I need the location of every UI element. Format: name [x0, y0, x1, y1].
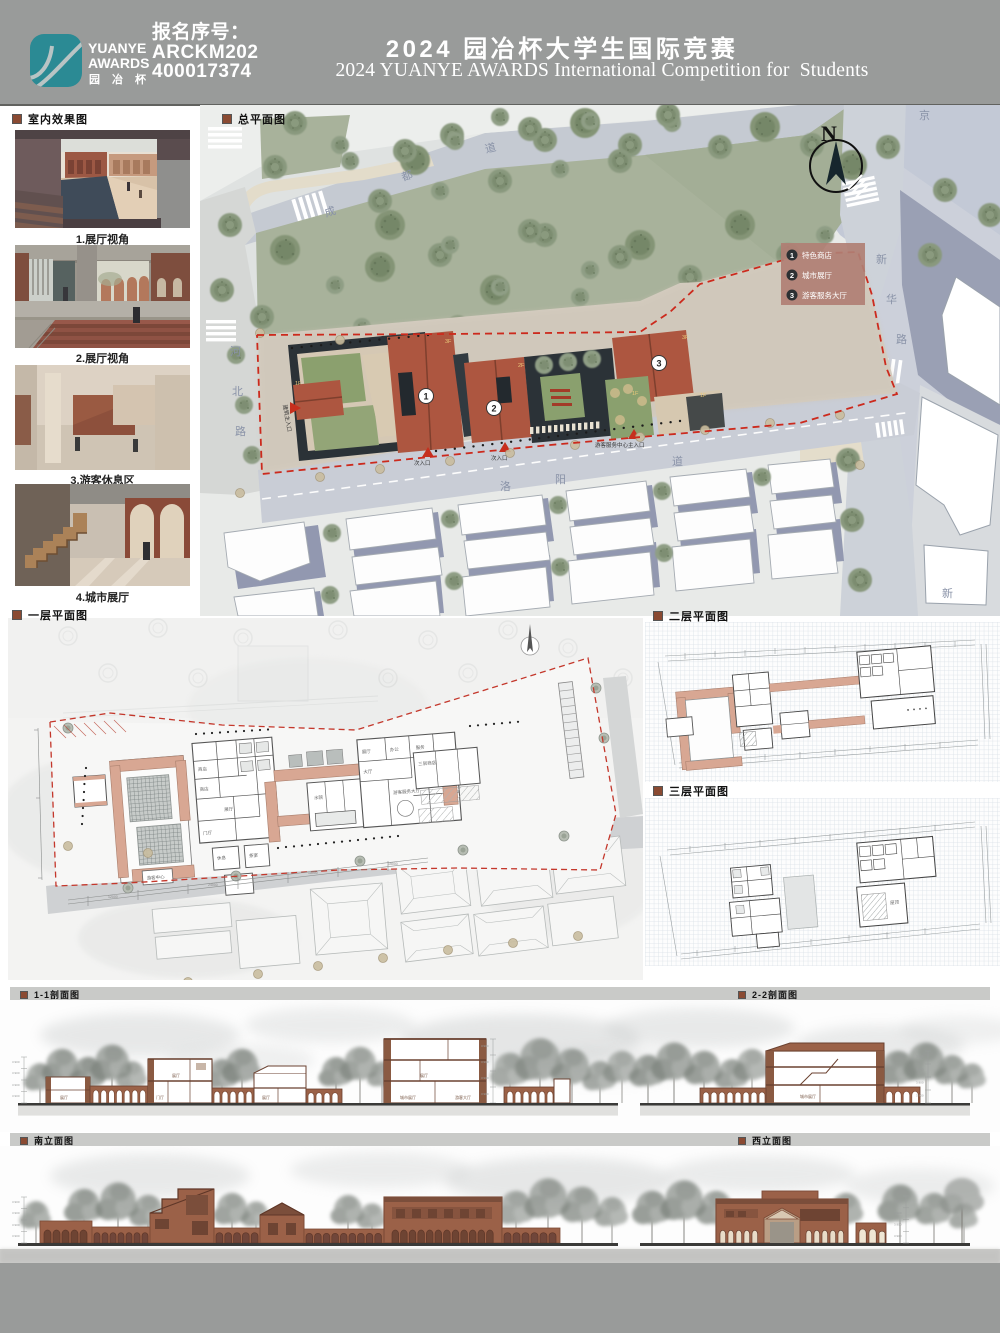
- svg-text:15000: 15000: [388, 862, 398, 866]
- svg-text:3.900: 3.900: [894, 1234, 902, 1238]
- svg-text:3.900: 3.900: [12, 1071, 20, 1075]
- svg-text:门厅: 门厅: [156, 1094, 164, 1100]
- svg-text:3: 3: [790, 291, 794, 300]
- svg-text:3.900: 3.900: [12, 1083, 20, 1087]
- svg-text:3.900: 3.900: [916, 1055, 924, 1059]
- svg-text:3F: 3F: [445, 339, 452, 345]
- svg-text:2: 2: [790, 271, 794, 280]
- svg-text:12000: 12000: [108, 895, 118, 899]
- svg-text:1F: 1F: [632, 391, 639, 397]
- svg-text:华: 华: [886, 292, 899, 306]
- svg-text:3.900: 3.900: [916, 1094, 924, 1098]
- svg-text:3.900: 3.900: [916, 1081, 924, 1085]
- svg-text:新: 新: [876, 252, 889, 266]
- svg-text:3.900: 3.900: [894, 1223, 902, 1227]
- svg-text:1F: 1F: [295, 381, 302, 387]
- svg-text:京: 京: [919, 108, 932, 122]
- svg-text:24000: 24000: [208, 883, 218, 887]
- svg-text:1F: 1F: [700, 393, 707, 399]
- svg-text:游客服务大厅: 游客服务大厅: [802, 290, 847, 300]
- svg-text:次入口: 次入口: [414, 459, 431, 467]
- svg-text:次入口: 次入口: [491, 454, 508, 462]
- svg-text:1: 1: [423, 392, 428, 402]
- svg-text:3.900: 3.900: [12, 1211, 20, 1215]
- svg-text:3.900: 3.900: [481, 1092, 489, 1096]
- svg-text:3.900: 3.900: [12, 1223, 20, 1227]
- svg-text:北: 北: [232, 385, 245, 398]
- svg-text:18000: 18000: [308, 871, 318, 875]
- svg-text:展厅: 展厅: [60, 1094, 68, 1100]
- svg-text:3: 3: [656, 359, 661, 369]
- svg-text:3.900: 3.900: [12, 1060, 20, 1064]
- svg-text:城市展厅: 城市展厅: [400, 1094, 416, 1100]
- svg-text:3.900: 3.900: [916, 1068, 924, 1072]
- svg-text:展厅: 展厅: [172, 1072, 180, 1078]
- svg-text:3.900: 3.900: [481, 1060, 489, 1064]
- svg-text:游客大厅: 游客大厅: [455, 1094, 471, 1100]
- svg-text:阳: 阳: [555, 473, 568, 486]
- svg-text:展厅: 展厅: [262, 1094, 270, 1100]
- svg-text:3.900: 3.900: [481, 1076, 489, 1080]
- svg-text:3.900: 3.900: [12, 1094, 20, 1098]
- svg-text:游客服务中心主入口: 游客服务中心主入口: [595, 441, 645, 449]
- svg-text:洛: 洛: [500, 479, 513, 493]
- svg-text:路: 路: [896, 333, 909, 346]
- svg-text:3.900: 3.900: [12, 1234, 20, 1238]
- svg-text:3.900: 3.900: [894, 1211, 902, 1215]
- svg-text:茶室: 茶室: [249, 852, 259, 859]
- svg-text:3.900: 3.900: [481, 1044, 489, 1048]
- svg-text:3F: 3F: [682, 335, 689, 341]
- svg-text:2: 2: [491, 404, 496, 414]
- svg-text:3.900: 3.900: [12, 1200, 20, 1204]
- svg-text:城市展厅: 城市展厅: [802, 270, 832, 280]
- svg-text:2F: 2F: [518, 363, 525, 369]
- svg-text:道: 道: [672, 454, 685, 468]
- svg-text:特色商店: 特色商店: [802, 250, 832, 260]
- svg-text:路: 路: [235, 425, 248, 438]
- svg-text:城市展厅: 城市展厅: [800, 1093, 816, 1099]
- svg-text:河: 河: [230, 345, 243, 358]
- svg-text:新: 新: [942, 586, 955, 600]
- svg-text:展厅: 展厅: [420, 1072, 428, 1078]
- svg-text:1: 1: [790, 251, 794, 260]
- svg-text:3.900: 3.900: [894, 1200, 902, 1204]
